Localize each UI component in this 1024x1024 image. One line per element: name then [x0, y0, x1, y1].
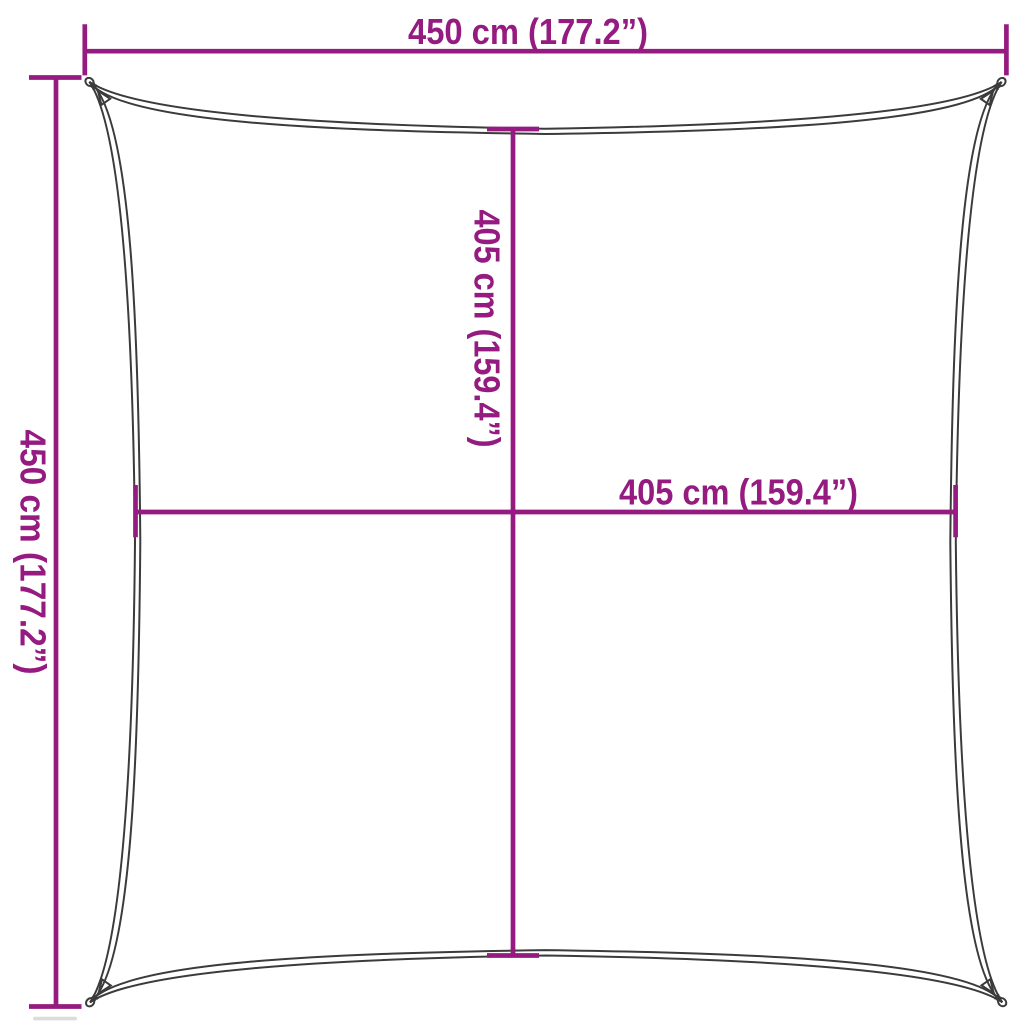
svg-text:405 cm (159.4”): 405 cm (159.4”): [619, 472, 858, 513]
svg-text:450 cm (177.2”): 450 cm (177.2”): [13, 430, 54, 675]
svg-text:405 cm (159.4”): 405 cm (159.4”): [466, 210, 507, 448]
svg-text:450 cm (177.2”): 450 cm (177.2”): [408, 11, 648, 52]
